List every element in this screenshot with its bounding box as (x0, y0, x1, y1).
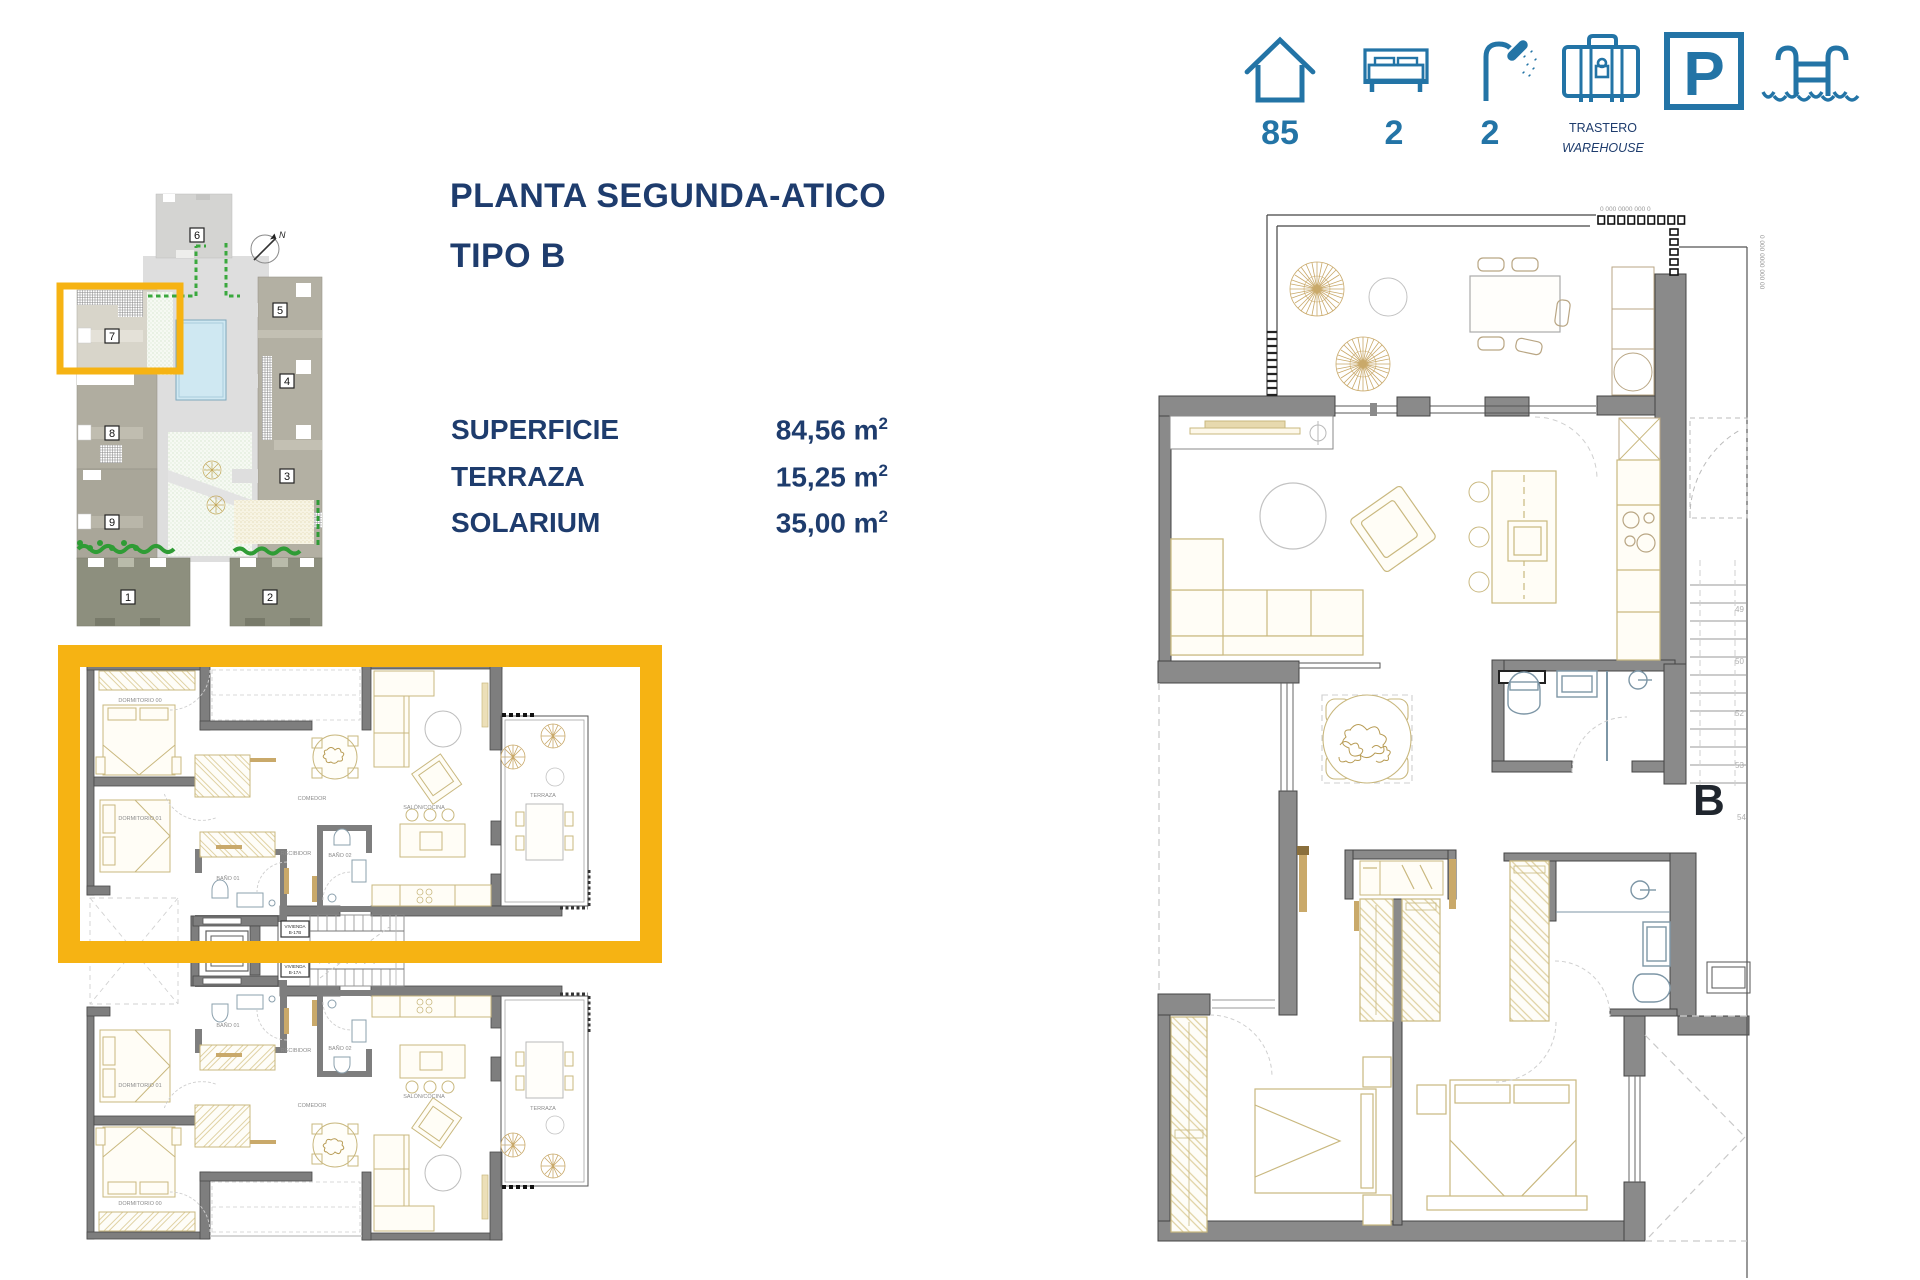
svg-text:0 000 0000 000 0: 0 000 0000 000 0 (1600, 206, 1651, 213)
svg-text:85: 85 (1261, 114, 1299, 152)
svg-text:B-17A: B-17A (289, 970, 302, 975)
svg-text:52: 52 (1735, 709, 1744, 718)
svg-text:1: 1 (125, 592, 131, 604)
svg-text:DORMITORIO 00: DORMITORIO 00 (118, 1201, 161, 1207)
svg-text:BAÑO 01: BAÑO 01 (216, 1022, 239, 1029)
svg-text:9: 9 (109, 517, 115, 529)
svg-text:TERRAZA: TERRAZA (530, 793, 556, 799)
svg-text:6: 6 (194, 230, 200, 242)
svg-text:B-17B: B-17B (289, 930, 302, 935)
svg-text:2: 2 (1385, 114, 1404, 152)
svg-text:VIVIENDA: VIVIENDA (284, 924, 305, 929)
svg-text:WAREHOUSE: WAREHOUSE (1562, 141, 1644, 155)
svg-text:4: 4 (284, 376, 290, 388)
svg-text:2: 2 (1481, 114, 1500, 152)
svg-text:VIVIENDA: VIVIENDA (284, 964, 305, 969)
svg-text:RECIBIDOR: RECIBIDOR (281, 851, 312, 857)
svg-text:TRASTERO: TRASTERO (1569, 121, 1637, 135)
svg-text:RECIBIDOR: RECIBIDOR (281, 1048, 312, 1054)
svg-text:0 000 0000 000 00: 0 000 0000 000 00 (1758, 235, 1765, 290)
svg-text:5: 5 (277, 305, 283, 317)
svg-text:DORMITORIO 00: DORMITORIO 00 (118, 698, 161, 704)
svg-text:DORMITORIO 01: DORMITORIO 01 (118, 816, 161, 822)
svg-text:DORMITORIO 01: DORMITORIO 01 (118, 1083, 161, 1089)
svg-text:COMEDOR: COMEDOR (298, 1103, 327, 1109)
svg-text:N: N (279, 230, 286, 240)
svg-text:3: 3 (284, 471, 290, 483)
svg-text:54: 54 (1737, 813, 1746, 822)
svg-text:8: 8 (109, 428, 115, 440)
svg-text:49: 49 (1735, 605, 1744, 614)
svg-text:TERRAZA: TERRAZA (530, 1106, 556, 1112)
svg-text:SALÓN/COCINA: SALÓN/COCINA (403, 804, 445, 811)
svg-text:53: 53 (1735, 761, 1744, 770)
svg-text:BAÑO 01: BAÑO 01 (216, 875, 239, 882)
svg-text:2: 2 (267, 592, 273, 604)
svg-text:BAÑO 02: BAÑO 02 (328, 1045, 351, 1052)
svg-text:COMEDOR: COMEDOR (298, 796, 327, 802)
svg-text:50: 50 (1735, 657, 1744, 666)
svg-text:7: 7 (109, 331, 115, 343)
svg-text:B: B (1693, 776, 1725, 825)
svg-text:P: P (1683, 40, 1724, 109)
svg-text:SALÓN/COCINA: SALÓN/COCINA (403, 1093, 445, 1100)
svg-text:BAÑO 02: BAÑO 02 (328, 852, 351, 859)
